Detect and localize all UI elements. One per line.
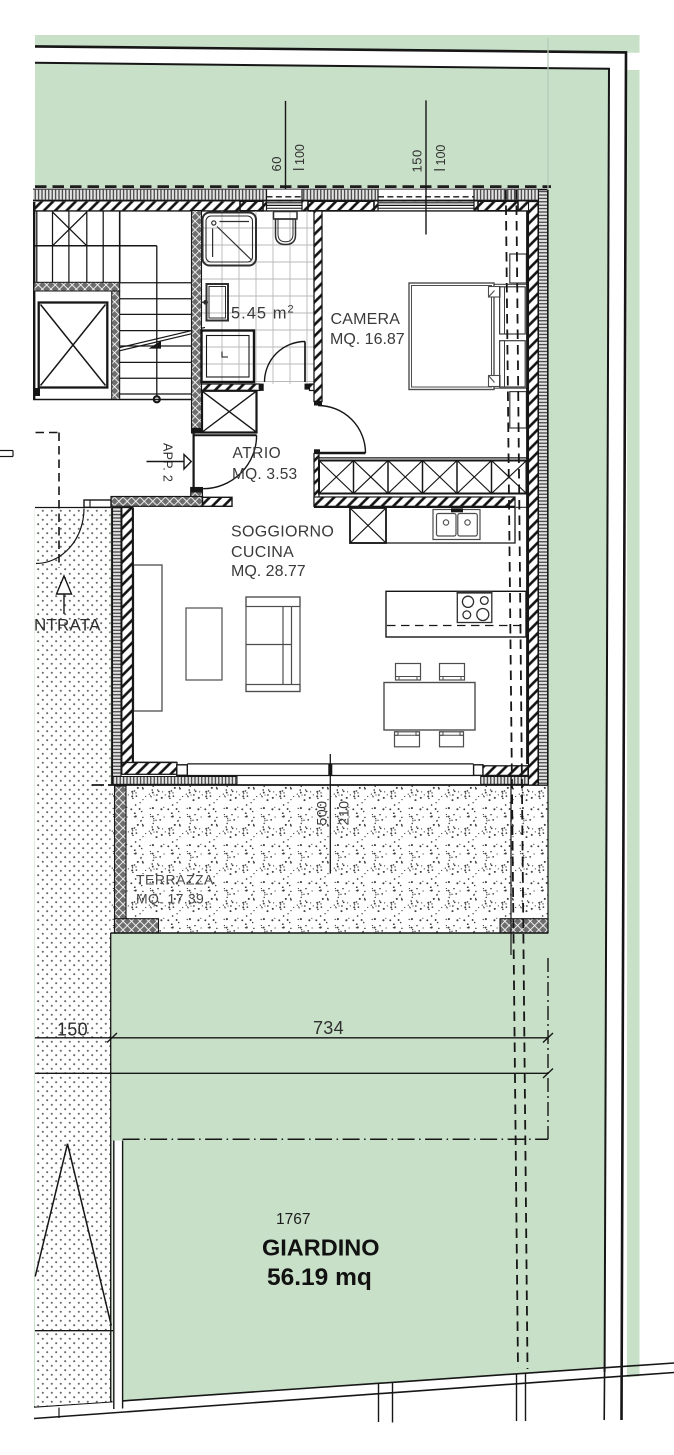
svg-text:56.19 mq: 56.19 mq	[267, 1264, 372, 1291]
svg-text:MQ. 3.53: MQ. 3.53	[232, 466, 297, 483]
svg-text:APP. 2: APP. 2	[161, 443, 175, 482]
svg-text:150: 150	[410, 149, 425, 172]
svg-text:GIARDINO: GIARDINO	[262, 1235, 380, 1261]
svg-text:NTRATA: NTRATA	[34, 616, 101, 635]
svg-text:CAMERA: CAMERA	[331, 311, 401, 328]
svg-text:MQ. 16.87: MQ. 16.87	[330, 331, 405, 348]
svg-text:MQ. 17.39: MQ. 17.39	[136, 891, 204, 907]
svg-text:5.45 m2: 5.45 m2	[231, 304, 295, 323]
svg-text:SOGGIORNO: SOGGIORNO	[231, 524, 334, 541]
svg-text:1767: 1767	[276, 1211, 310, 1228]
svg-text:60: 60	[269, 156, 284, 171]
svg-text:100: 100	[293, 144, 307, 165]
svg-text:100: 100	[434, 145, 448, 166]
svg-text:MQ. 28.77: MQ. 28.77	[231, 563, 306, 580]
svg-text:734: 734	[313, 1018, 344, 1038]
svg-text:150: 150	[57, 1020, 88, 1040]
svg-text:ATRIO: ATRIO	[233, 445, 282, 462]
svg-text:CUCINA: CUCINA	[231, 544, 294, 561]
svg-text:TERRAZZA: TERRAZZA	[136, 872, 214, 888]
svg-text:210: 210	[336, 800, 352, 825]
svg-text:500: 500	[314, 800, 330, 825]
